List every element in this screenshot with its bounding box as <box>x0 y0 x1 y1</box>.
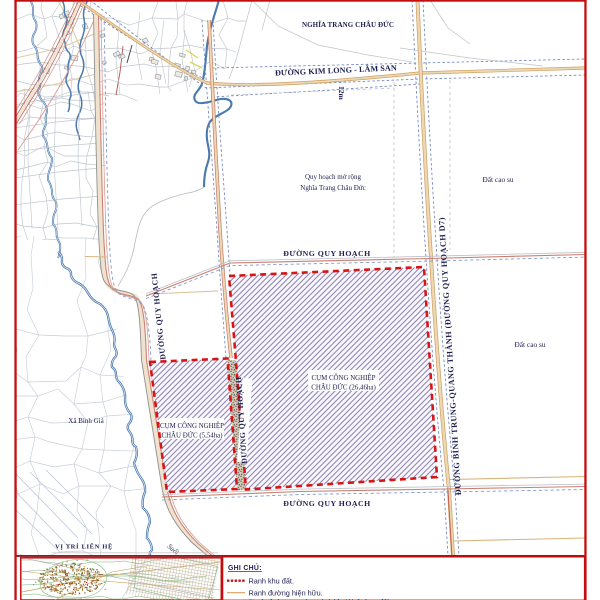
svg-text:NGHĨA TRANG CHÂU ĐỨC: NGHĨA TRANG CHÂU ĐỨC <box>302 21 394 29</box>
svg-text:Quy hoạch mở rộng: Quy hoạch mở rộng <box>305 173 361 181</box>
svg-text:Đất cao su: Đất cao su <box>482 175 513 184</box>
svg-text:Ranh khu đất.: Ranh khu đất. <box>249 577 294 586</box>
svg-text:ĐƯỜNG QUY HOẠCH: ĐƯỜNG QUY HOẠCH <box>283 498 371 508</box>
svg-text:VỊ TRÍ LIÊN HỆ: VỊ TRÍ LIÊN HỆ <box>55 543 113 551</box>
svg-text:Đất cao su: Đất cao su <box>514 340 545 349</box>
svg-text:Xã Bình Giá: Xã Bình Giá <box>68 417 104 425</box>
svg-text:ĐƯỜNG QUY HOẠCH: ĐƯỜNG QUY HOẠCH <box>283 248 371 258</box>
svg-text:Nghĩa Trang Châu Đức: Nghĩa Trang Châu Đức <box>300 184 365 192</box>
svg-text:GHI CHÚ:: GHI CHÚ: <box>228 563 262 572</box>
svg-text:Ranh đường hiện hữu.: Ranh đường hiện hữu. <box>249 589 323 598</box>
svg-text:CỤM CÔNG NGHIỆP: CỤM CÔNG NGHIỆP <box>160 422 224 430</box>
svg-text:CHÂU ĐỨC (26,46ha): CHÂU ĐỨC (26,46ha) <box>311 384 376 392</box>
svg-text:12m: 12m <box>337 86 346 101</box>
svg-text:CỤM CÔNG NGHIỆP: CỤM CÔNG NGHIỆP <box>312 374 376 382</box>
svg-text:CHÂU ĐỨC (5,54ha): CHÂU ĐỨC (5,54ha) <box>161 432 222 440</box>
